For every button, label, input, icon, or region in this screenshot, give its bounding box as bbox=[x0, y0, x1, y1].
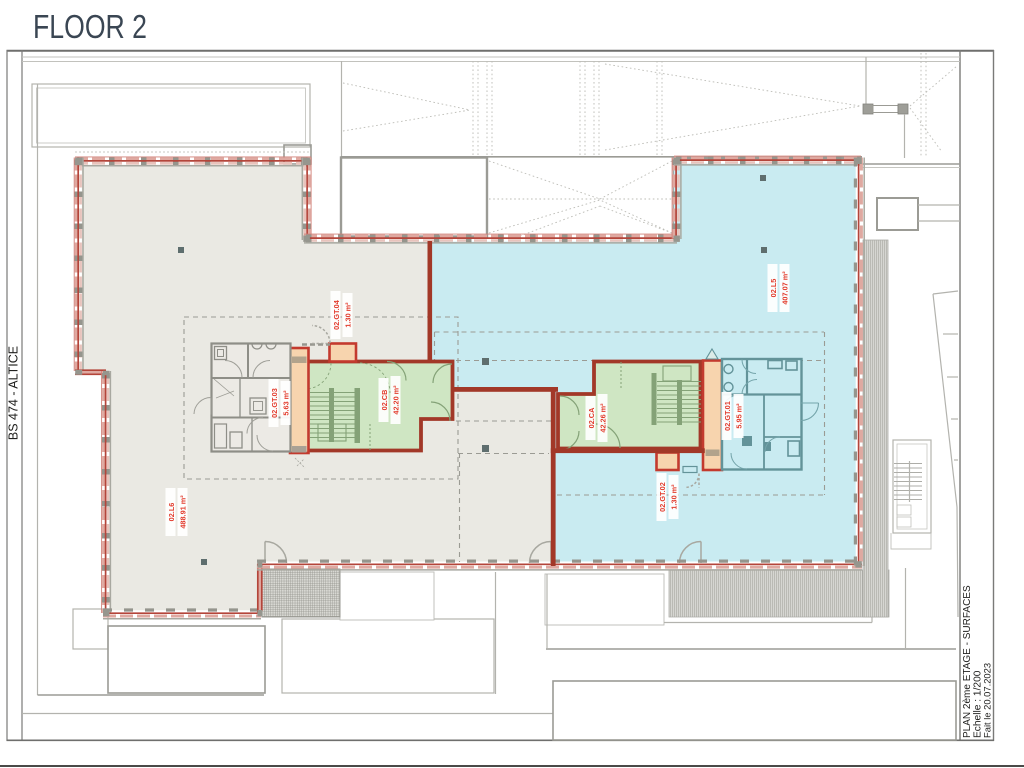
svg-text:BS 474 - ALTICE: BS 474 - ALTICE bbox=[7, 346, 21, 440]
svg-text:FLOOR 2: FLOOR 2 bbox=[33, 8, 147, 45]
svg-text:1.30 m²: 1.30 m² bbox=[344, 302, 353, 328]
svg-text:02.GT.02: 02.GT.02 bbox=[658, 482, 667, 512]
svg-text:02.GT.04: 02.GT.04 bbox=[332, 299, 341, 330]
svg-text:42.20 m²: 42.20 m² bbox=[392, 385, 401, 415]
svg-text:488.91 m²: 488.91 m² bbox=[179, 495, 188, 529]
svg-text:1.30 m²: 1.30 m² bbox=[670, 484, 679, 510]
svg-text:02.CA: 02.CA bbox=[587, 407, 596, 428]
svg-text:02.GT.01: 02.GT.01 bbox=[723, 401, 732, 431]
svg-text:5.95 m²: 5.95 m² bbox=[735, 403, 744, 429]
svg-text:02.GT.03: 02.GT.03 bbox=[270, 388, 279, 418]
svg-text:02.L6: 02.L6 bbox=[167, 503, 176, 522]
svg-text:Fait le 20.07.2023: Fait le 20.07.2023 bbox=[982, 663, 993, 738]
svg-text:02.CB: 02.CB bbox=[380, 390, 389, 411]
svg-text:407.07 m²: 407.07 m² bbox=[781, 271, 790, 305]
svg-text:PLAN 2ème ETAGE - SURFACES: PLAN 2ème ETAGE - SURFACES bbox=[962, 585, 973, 738]
svg-text:02.L5: 02.L5 bbox=[769, 279, 778, 298]
svg-text:5.63 m²: 5.63 m² bbox=[282, 390, 291, 416]
svg-text:42.26 m²: 42.26 m² bbox=[599, 403, 608, 433]
